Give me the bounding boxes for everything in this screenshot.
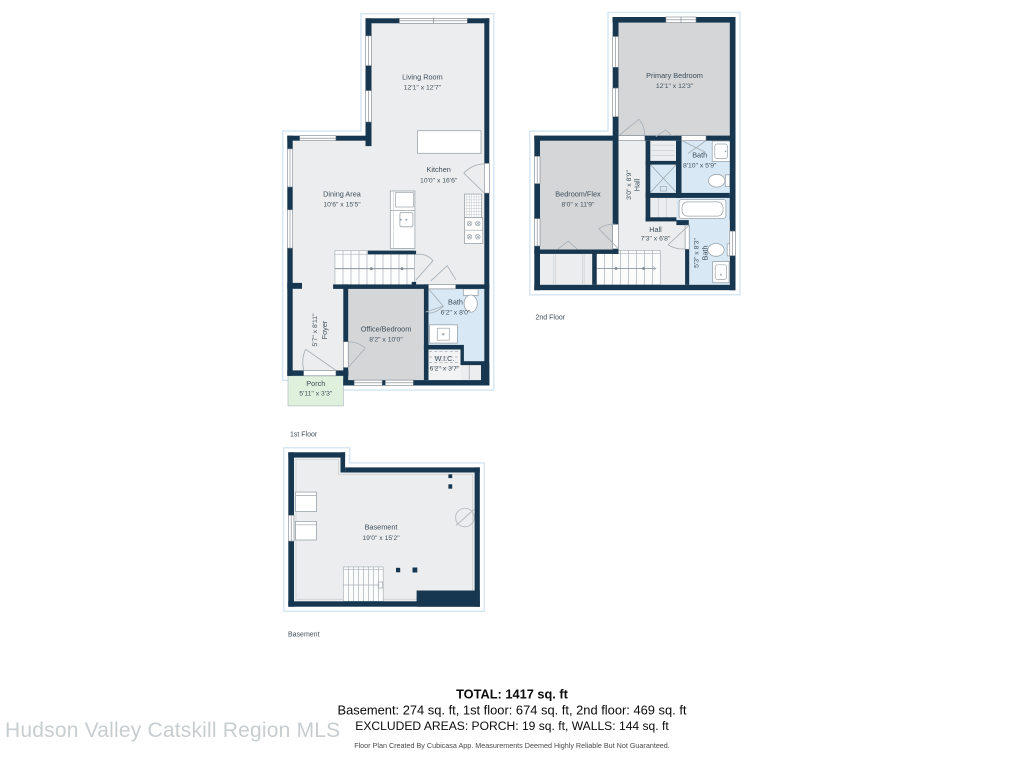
- svg-text:Floor Plan Created By Cubicasa: Floor Plan Created By Cubicasa App. Meas…: [354, 741, 670, 750]
- svg-text:5'11" x 3'3": 5'11" x 3'3": [299, 391, 333, 398]
- svg-text:10'6" x 15'5": 10'6" x 15'5": [323, 202, 361, 209]
- svg-text:7'3" x 6'8": 7'3" x 6'8": [641, 236, 671, 243]
- svg-text:Bath: Bath: [701, 245, 710, 260]
- svg-text:Basement: 274 sq. ft, 1st floo: Basement: 274 sq. ft, 1st floor: 674 sq.…: [338, 703, 687, 718]
- svg-text:W.I.C.: W.I.C.: [435, 354, 455, 363]
- svg-text:Foyer: Foyer: [320, 320, 329, 339]
- svg-text:Bath: Bath: [448, 298, 463, 307]
- svg-text:Living Room: Living Room: [402, 72, 443, 81]
- svg-text:12'1" x 12'7": 12'1" x 12'7": [404, 85, 442, 92]
- svg-text:2nd Floor: 2nd Floor: [536, 315, 566, 322]
- svg-text:10'0" x 16'6": 10'0" x 16'6": [420, 178, 458, 185]
- svg-text:Dining Area: Dining Area: [323, 189, 362, 198]
- svg-text:Hall: Hall: [649, 225, 662, 234]
- svg-text:EXCLUDED AREAS: PORCH: 19 sq.: EXCLUDED AREAS: PORCH: 19 sq. ft, WALLS:…: [355, 719, 669, 733]
- svg-text:19'0" x 15'2": 19'0" x 15'2": [362, 535, 400, 542]
- svg-text:Basement: Basement: [288, 632, 320, 639]
- svg-text:Primary Bedroom: Primary Bedroom: [646, 71, 703, 80]
- svg-text:6'2" x 3'7": 6'2" x 3'7": [430, 366, 460, 373]
- svg-text:3'0" x 8'9": 3'0" x 8'9": [626, 170, 633, 200]
- svg-text:1st Floor: 1st Floor: [290, 432, 318, 439]
- svg-text:Bath: Bath: [692, 151, 707, 160]
- svg-text:8'0" x 11'9": 8'0" x 11'9": [562, 202, 596, 209]
- svg-text:Hall: Hall: [633, 178, 642, 191]
- svg-text:Office/Bedroom: Office/Bedroom: [361, 324, 412, 333]
- svg-text:8'2" x 10'0": 8'2" x 10'0": [369, 337, 403, 344]
- svg-text:6'2" x 8'0": 6'2" x 8'0": [441, 310, 471, 317]
- svg-text:12'1" x 12'3": 12'1" x 12'3": [656, 83, 694, 90]
- svg-text:Basement: Basement: [365, 523, 398, 532]
- svg-text:8'10" x 5'9": 8'10" x 5'9": [683, 162, 717, 169]
- svg-text:Porch: Porch: [306, 379, 325, 388]
- svg-text:Kitchen: Kitchen: [427, 165, 451, 174]
- svg-text:Bedroom/Flex: Bedroom/Flex: [555, 189, 601, 198]
- svg-text:Hudson Valley Catskill Region: Hudson Valley Catskill Region MLS: [5, 719, 340, 742]
- svg-text:TOTAL: 1417 sq. ft: TOTAL: 1417 sq. ft: [456, 686, 569, 701]
- svg-text:5'3" x 8'3": 5'3" x 8'3": [694, 238, 701, 268]
- svg-text:5'7" x 8'11": 5'7" x 8'11": [312, 313, 319, 347]
